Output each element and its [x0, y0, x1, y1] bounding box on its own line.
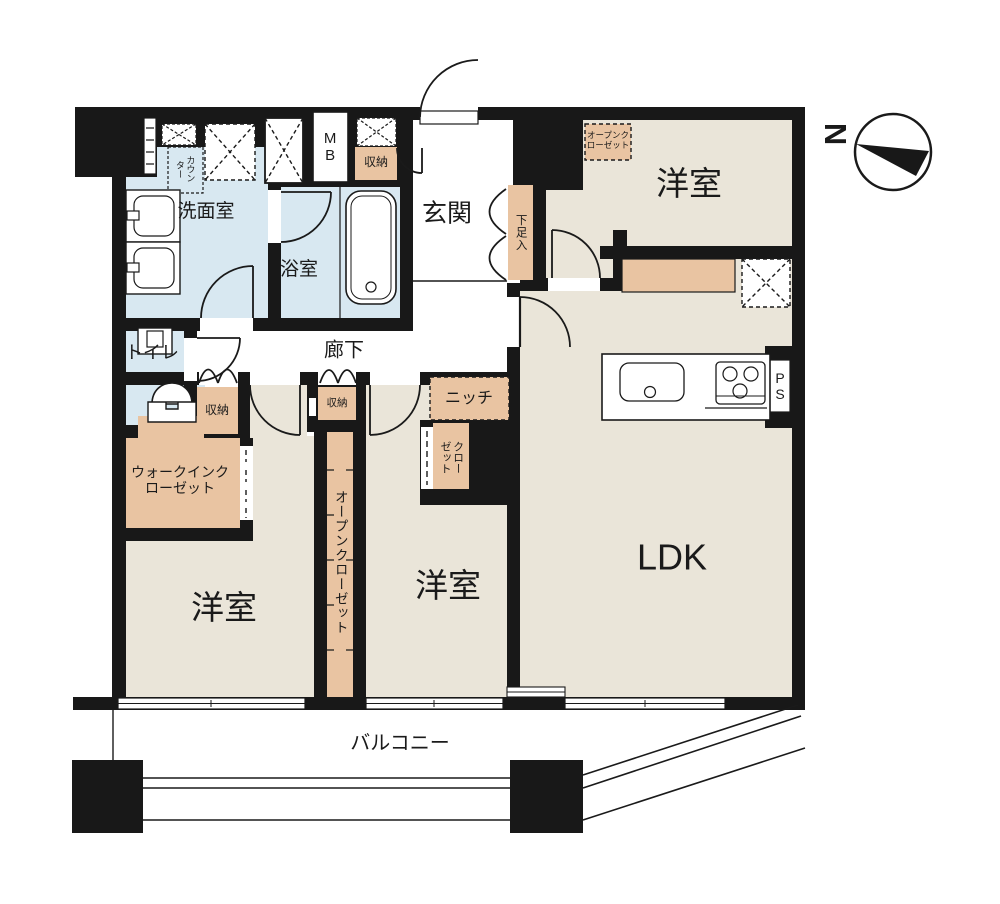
bathtub-drain	[366, 282, 376, 292]
floor-plan: 洗面室 浴室 トイレ 玄関 廊下 洋室 洋室 洋室 LDK バルコニー ニッチ …	[0, 0, 1000, 904]
duct-strip	[144, 118, 156, 174]
label-closet: クローゼット	[438, 436, 463, 478]
label-shoe-cabinet: 下足入	[513, 198, 526, 268]
label-corridor: 廊下	[324, 340, 364, 363]
label-pipe-space: PS	[772, 362, 788, 410]
label-north: N	[818, 123, 854, 145]
opening-washroom	[200, 318, 253, 331]
opening-bathroom	[268, 190, 281, 243]
label-toilet: トイレ	[125, 343, 179, 364]
label-entrance: 玄関	[422, 200, 472, 229]
balcony	[72, 705, 805, 833]
wall-shoebox-right	[533, 183, 546, 290]
label-niche: ニッチ	[445, 390, 493, 408]
label-open-closet-strip: オープンクローゼット	[332, 437, 348, 687]
sink-bowl-1	[134, 196, 174, 236]
balcony-railing-diagonals	[583, 705, 805, 820]
ldk-floor	[520, 259, 792, 699]
label-bedroom3: 洋室	[191, 589, 257, 627]
wall-right	[792, 107, 805, 710]
wall-bedroom1-bottom	[600, 246, 792, 259]
opening-ldk	[507, 297, 520, 347]
label-meter-box: MB	[321, 126, 338, 168]
sink-bowl-2	[134, 248, 174, 288]
sink-faucet-2	[127, 263, 139, 272]
wall-wic-bottom	[112, 528, 253, 541]
opening-bedroom2	[370, 372, 420, 385]
balcony-pillar-mid	[510, 760, 583, 833]
label-ldk: LDK	[637, 536, 707, 577]
opening-toilet	[184, 338, 197, 381]
label-bedroom2: 洋室	[415, 567, 481, 605]
label-balcony: バルコニー	[350, 733, 450, 756]
label-walk-in-closet: ウォークインクローゼット	[128, 464, 232, 496]
wall-opencloset-right	[353, 420, 366, 697]
label-storage-top: 収納	[364, 156, 388, 170]
wall-entrance-right-block	[513, 107, 583, 190]
label-bedroom1: 洋室	[656, 165, 722, 203]
wall-bed2-ldk	[507, 505, 520, 697]
label-open-closet-small: オープンクローゼット	[585, 131, 631, 151]
wall-opencloset-left	[314, 420, 327, 697]
stove-burner-2	[744, 367, 758, 381]
label-storage-hall-2: 収納	[327, 397, 348, 409]
kitchen-sink-drain	[645, 387, 656, 398]
compass	[855, 114, 931, 190]
kitchen-counter-area	[622, 259, 735, 292]
opening-bedroom1	[548, 278, 600, 291]
opening-notch-deco	[309, 398, 316, 416]
label-bathroom: 浴室	[280, 259, 318, 281]
label-washroom: 洗面室	[177, 201, 234, 223]
sink-faucet-1	[127, 211, 139, 220]
label-storage-hall-1: 収納	[205, 404, 229, 418]
balcony-railing-lines	[143, 778, 510, 820]
opening-bedroom3	[250, 372, 300, 385]
balcony-pillar-left	[72, 760, 143, 833]
bedroom3-floor-2	[253, 436, 316, 546]
stove-burner-1	[723, 367, 737, 381]
label-counter: カウンター	[175, 153, 196, 186]
entrance-door-leaf	[420, 111, 478, 124]
wall-entrance-left	[400, 120, 413, 331]
